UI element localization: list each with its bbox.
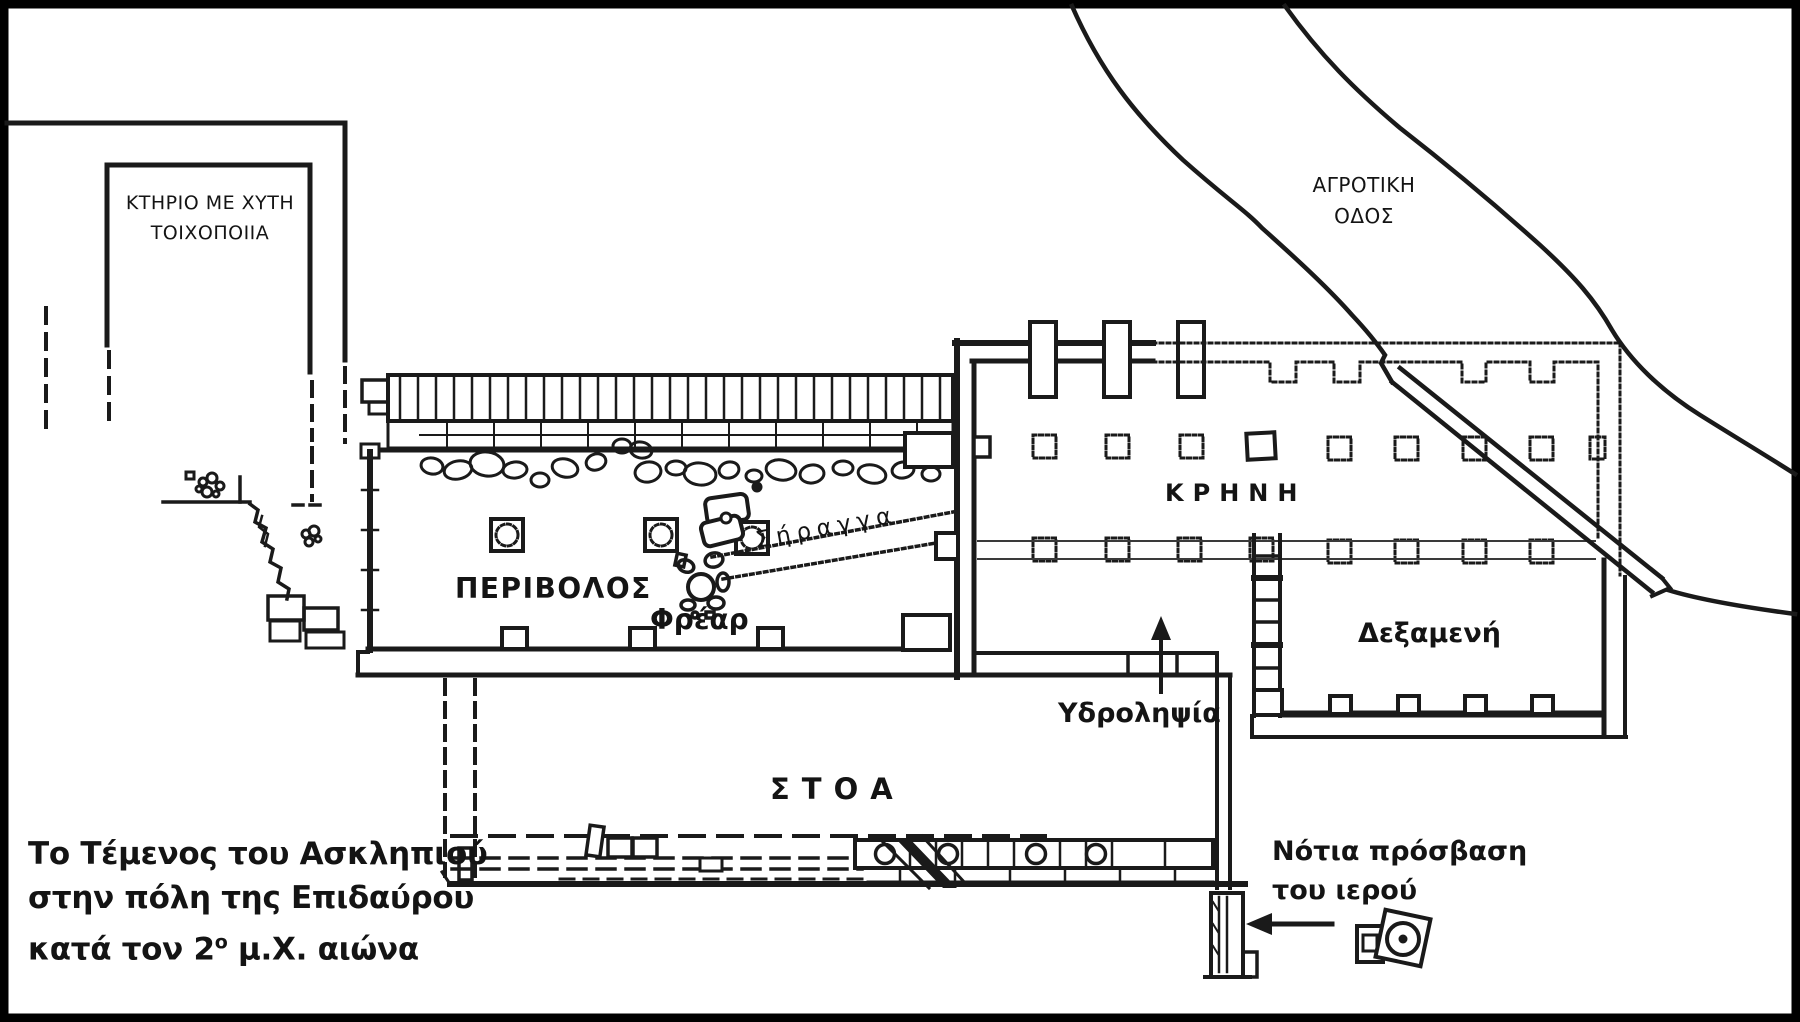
ydrolipsia-wall	[978, 653, 1217, 675]
map-title-line1: Το Τέμενος του Ασκληπιού	[28, 832, 488, 876]
south-access-label-line1: Νότια πρόσβαση	[1272, 832, 1527, 871]
rock-outcrop	[163, 472, 344, 648]
building-outline	[7, 123, 345, 505]
water-intake-label: Υδροληψία	[1058, 698, 1221, 729]
building-label-line1: ΚΤΗΡΙΟ ΜΕ ΧΥΤΗ	[95, 188, 325, 218]
road-label: ΑΓΡΟΤΙΚΗ ΟΔΟΣ	[1264, 170, 1464, 232]
fallen-blocks	[700, 493, 750, 547]
map-title-line3: κατά τον 2ο μ.Χ. αιώνα	[28, 920, 488, 971]
map-title: Το Τέμενος του Ασκληπιού στην πόλη της Ε…	[28, 832, 488, 971]
south-access-label-line2: του ιερού	[1272, 871, 1527, 910]
well-label: Φρέαρ	[650, 603, 749, 636]
stoa-label: ΣΤΟΑ	[770, 772, 905, 806]
left-arrow-icon	[1246, 913, 1332, 935]
cistern-label: Δεξαμενή	[1358, 618, 1501, 649]
building-label-line2: ΤΟΙΧΟΠΟΙΙΑ	[95, 218, 325, 248]
wellhead-icon	[1357, 910, 1430, 967]
building-label: ΚΤΗΡΙΟ ΜΕ ΧΥΤΗ ΤΟΙΧΟΠΟΙΙΑ	[95, 188, 325, 248]
fountain-label: ΚΡΗΝΗ	[1165, 479, 1306, 507]
road-lines	[1072, 6, 1795, 614]
peribolos-label: ΠΕΡΙΒΟΛΟΣ	[455, 572, 652, 605]
road-label-line2: ΟΔΟΣ	[1264, 201, 1464, 232]
site-plan-figure: ΚΤΗΡΙΟ ΜΕ ΧΥΤΗ ΤΟΙΧΟΠΟΙΙΑ ΑΓΡΟΤΙΚΗ ΟΔΟΣ …	[0, 0, 1800, 1022]
south-gate	[1205, 893, 1257, 977]
south-access-label: Νότια πρόσβαση του ιερού	[1272, 832, 1527, 910]
road-label-line1: ΑΓΡΟΤΙΚΗ	[1264, 170, 1464, 201]
map-title-line2: στην πόλη της Επιδαύρου	[28, 876, 488, 920]
